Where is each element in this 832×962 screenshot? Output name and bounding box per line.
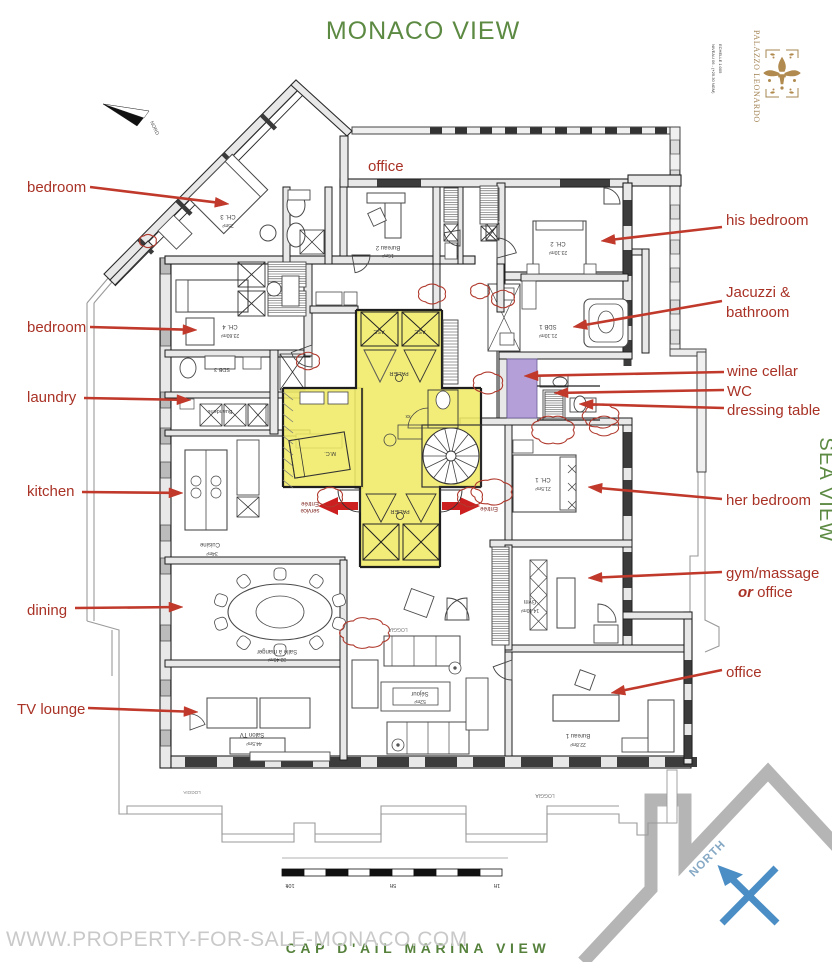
svg-text:PALAZZO LEONARDO: PALAZZO LEONARDO <box>752 30 761 123</box>
svg-text:his bedroom: his bedroom <box>726 212 809 229</box>
svg-text:Salle à manger: Salle à manger <box>257 648 297 654</box>
svg-text:service: service <box>300 507 320 513</box>
svg-text:TV lounge: TV lounge <box>17 701 85 718</box>
svg-text:LOGGIA: LOGGIA <box>535 792 555 798</box>
svg-text:Buanderie: Buanderie <box>207 408 232 414</box>
svg-text:22.8m²: 22.8m² <box>570 741 586 747</box>
svg-text:52m²: 52m² <box>414 698 426 704</box>
svg-text:kitchen: kitchen <box>27 483 75 500</box>
svg-text:25m²: 25m² <box>222 222 234 228</box>
svg-text:WC: WC <box>727 383 752 400</box>
svg-text:ECHELLE 1:005: ECHELLE 1:005 <box>718 44 723 74</box>
svg-text:Bureau 2: Bureau 2 <box>375 244 400 250</box>
svg-text:PALIER: PALIER <box>389 370 408 376</box>
svg-text:office: office <box>368 158 404 175</box>
svg-text:34m²: 34m² <box>206 550 218 556</box>
svg-text:dressing table: dressing table <box>727 402 820 419</box>
svg-text:laundry: laundry <box>27 389 77 406</box>
svg-text:NIVEAU 06 - (+25.30 NGM): NIVEAU 06 - (+25.30 NGM) <box>711 44 716 94</box>
svg-text:WWW.PROPERTY-FOR-SALE-MONACO.C: WWW.PROPERTY-FOR-SALE-MONACO.COM <box>6 928 468 951</box>
svg-text:Entrée: Entrée <box>480 505 498 511</box>
svg-text:bathroom: bathroom <box>726 304 789 321</box>
svg-text:bedroom: bedroom <box>27 179 86 196</box>
svg-text:Salon TV: Salon TV <box>240 731 265 737</box>
svg-text:gym/massage: gym/massage <box>726 565 819 582</box>
svg-text:Bureau 1: Bureau 1 <box>565 732 590 738</box>
svg-text:21.10m²: 21.10m² <box>538 332 557 338</box>
svg-text:5ft: 5ft <box>389 882 396 888</box>
svg-text:Cuisine: Cuisine <box>199 541 220 547</box>
svg-text:44.5m²: 44.5m² <box>246 740 262 746</box>
svg-text:SDB 1: SDB 1 <box>539 323 557 329</box>
svg-text:CH. 4: CH. 4 <box>222 323 238 329</box>
svg-text:Entrée: Entrée <box>301 500 319 506</box>
svg-text:her bedroom: her bedroom <box>726 492 811 509</box>
svg-text:23.10m²: 23.10m² <box>548 249 567 255</box>
svg-text:LOGGIA: LOGGIA <box>183 790 200 795</box>
svg-text:CH. 2: CH. 2 <box>550 240 566 246</box>
svg-text:SEA VIEW: SEA VIEW <box>815 437 832 542</box>
svg-text:Gym: Gym <box>524 598 537 604</box>
svg-text:or office: or office <box>738 584 793 601</box>
svg-text:LOGGIA: LOGGIA <box>388 626 408 632</box>
svg-text:SDB 3: SDB 3 <box>214 366 230 372</box>
svg-text:21.5m²: 21.5m² <box>535 485 551 491</box>
svg-text:Séjour: Séjour <box>411 690 428 696</box>
svg-text:office: office <box>726 664 762 681</box>
svg-text:CH. 3: CH. 3 <box>220 213 236 219</box>
svg-text:xx: xx <box>405 413 411 419</box>
svg-text:wine cellar: wine cellar <box>726 363 798 380</box>
svg-text:ASC: ASC <box>414 328 425 334</box>
svg-text:dining: dining <box>27 602 67 619</box>
svg-text:14.10m²: 14.10m² <box>520 607 539 613</box>
svg-text:23.60m²: 23.60m² <box>220 332 239 338</box>
svg-text:10ft: 10ft <box>285 882 295 888</box>
svg-text:33.40m²: 33.40m² <box>267 656 286 662</box>
svg-text:bedroom: bedroom <box>27 319 86 336</box>
svg-text:ASC: ASC <box>373 328 384 334</box>
svg-text:1ft: 1ft <box>493 882 500 888</box>
svg-text:PALIER: PALIER <box>390 508 409 514</box>
svg-text:Jacuzzi &: Jacuzzi & <box>726 284 790 301</box>
svg-text:M.C.: M.C. <box>324 450 336 456</box>
svg-text:16m²: 16m² <box>382 252 394 258</box>
svg-text:CH. 1: CH. 1 <box>535 476 551 482</box>
svg-text:MONACO VIEW: MONACO VIEW <box>326 17 520 45</box>
